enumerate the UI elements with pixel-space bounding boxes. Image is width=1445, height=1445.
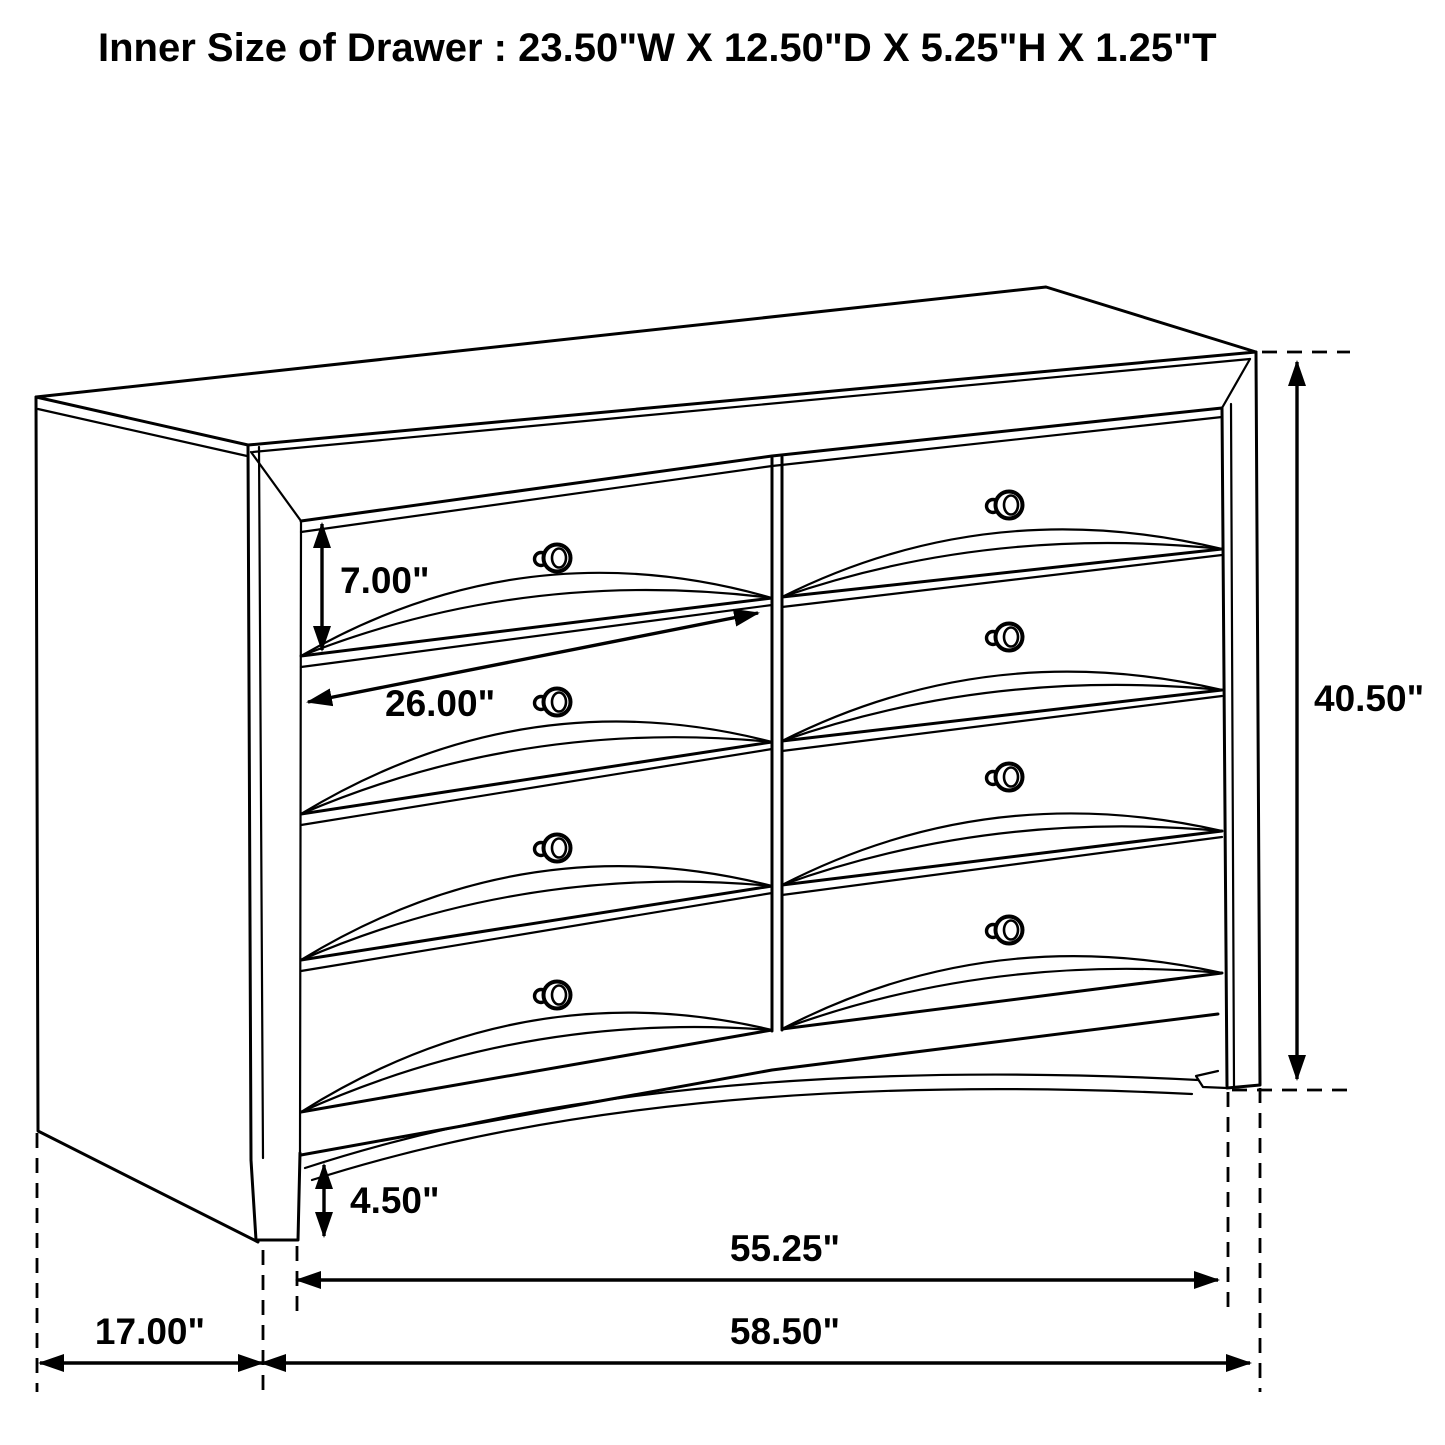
dim-label-case-width: 55.25" — [730, 1228, 840, 1269]
drawer-row4-right — [782, 956, 1222, 1029]
drawer-row2-right — [782, 672, 1222, 751]
drawer-lens-outer — [301, 866, 772, 960]
dresser-left-side-top-band — [38, 409, 247, 456]
dresser-top-front-inner-line — [253, 359, 1250, 452]
drawer-knobs — [535, 492, 1023, 1009]
right-foot — [1196, 1071, 1227, 1088]
drawer-lens-outer — [782, 672, 1222, 741]
right-stile-bottom — [1227, 1085, 1260, 1088]
drawer-row3-right — [782, 813, 1222, 895]
drawer-gap-subline — [782, 837, 1222, 895]
dim-label-depth: 17.00" — [95, 1311, 205, 1352]
dresser-dimension-diagram: 7.00" 26.00" 40.50" 4.50" 55.25" 58.50" … — [0, 0, 1445, 1445]
front-right-stile-mid — [1231, 404, 1234, 1086]
front-right-bevel — [1222, 359, 1250, 408]
knob-row4-left — [535, 982, 571, 1009]
dresser-outline — [36, 287, 1260, 1242]
drawer-row3-left — [301, 866, 772, 971]
drawer-gap-line — [782, 549, 1222, 597]
drawer-lens-outer — [782, 956, 1222, 1029]
drawer-row2-left — [301, 722, 772, 825]
dim-label-overall-width: 58.50" — [730, 1311, 840, 1352]
knob-row2-left — [535, 689, 571, 716]
drawer-gap-line — [301, 1030, 772, 1112]
knob-row1-left — [535, 545, 571, 572]
knob-row1-right — [987, 492, 1023, 519]
drawer-row4-left — [301, 1013, 772, 1112]
dim-label-drawer-height: 7.00" — [340, 560, 430, 601]
drawer-gap-line — [301, 598, 772, 656]
apron-curve-inner — [312, 1089, 1192, 1180]
dim-label-overall-height: 40.50" — [1314, 678, 1424, 719]
knob-row2-right — [987, 624, 1023, 651]
drawer-gap-line — [782, 690, 1222, 741]
drawer-gap-subline — [782, 696, 1222, 751]
knob-row4-right — [987, 917, 1023, 944]
dresser-left-side-panel — [36, 397, 258, 1242]
front-left-stile-outer — [248, 445, 300, 1240]
dim-label-foot-height: 4.50" — [350, 1180, 440, 1221]
dimension-diagram-page: 7.00" 26.00" 40.50" 4.50" 55.25" 58.50" … — [0, 0, 1445, 1445]
dresser-top-face — [36, 287, 1256, 445]
bottom-rail-bottom-edge — [301, 1014, 1218, 1155]
front-right-stile-inner — [1222, 408, 1227, 1086]
drawer-lens-outer — [301, 722, 772, 814]
knob-row3-right — [987, 764, 1023, 791]
drawer-gap-line — [782, 831, 1222, 885]
center-divider — [772, 457, 782, 1031]
page-title: Inner Size of Drawer : 23.50"W X 12.50"D… — [98, 26, 1217, 70]
drawer-gap-line — [301, 742, 772, 814]
dim-label-drawer-width: 26.00" — [385, 683, 495, 724]
knob-row3-left — [535, 835, 571, 862]
drawer-gap-subline — [782, 555, 1222, 607]
front-right-stile-outer — [1256, 352, 1260, 1084]
drawer-row1-right — [782, 529, 1222, 607]
drawer-lens-outer — [782, 813, 1222, 885]
front-left-stile-inner — [259, 447, 263, 1158]
front-face-left-edge — [300, 521, 301, 1153]
front-top-frame-edge — [301, 408, 1222, 521]
